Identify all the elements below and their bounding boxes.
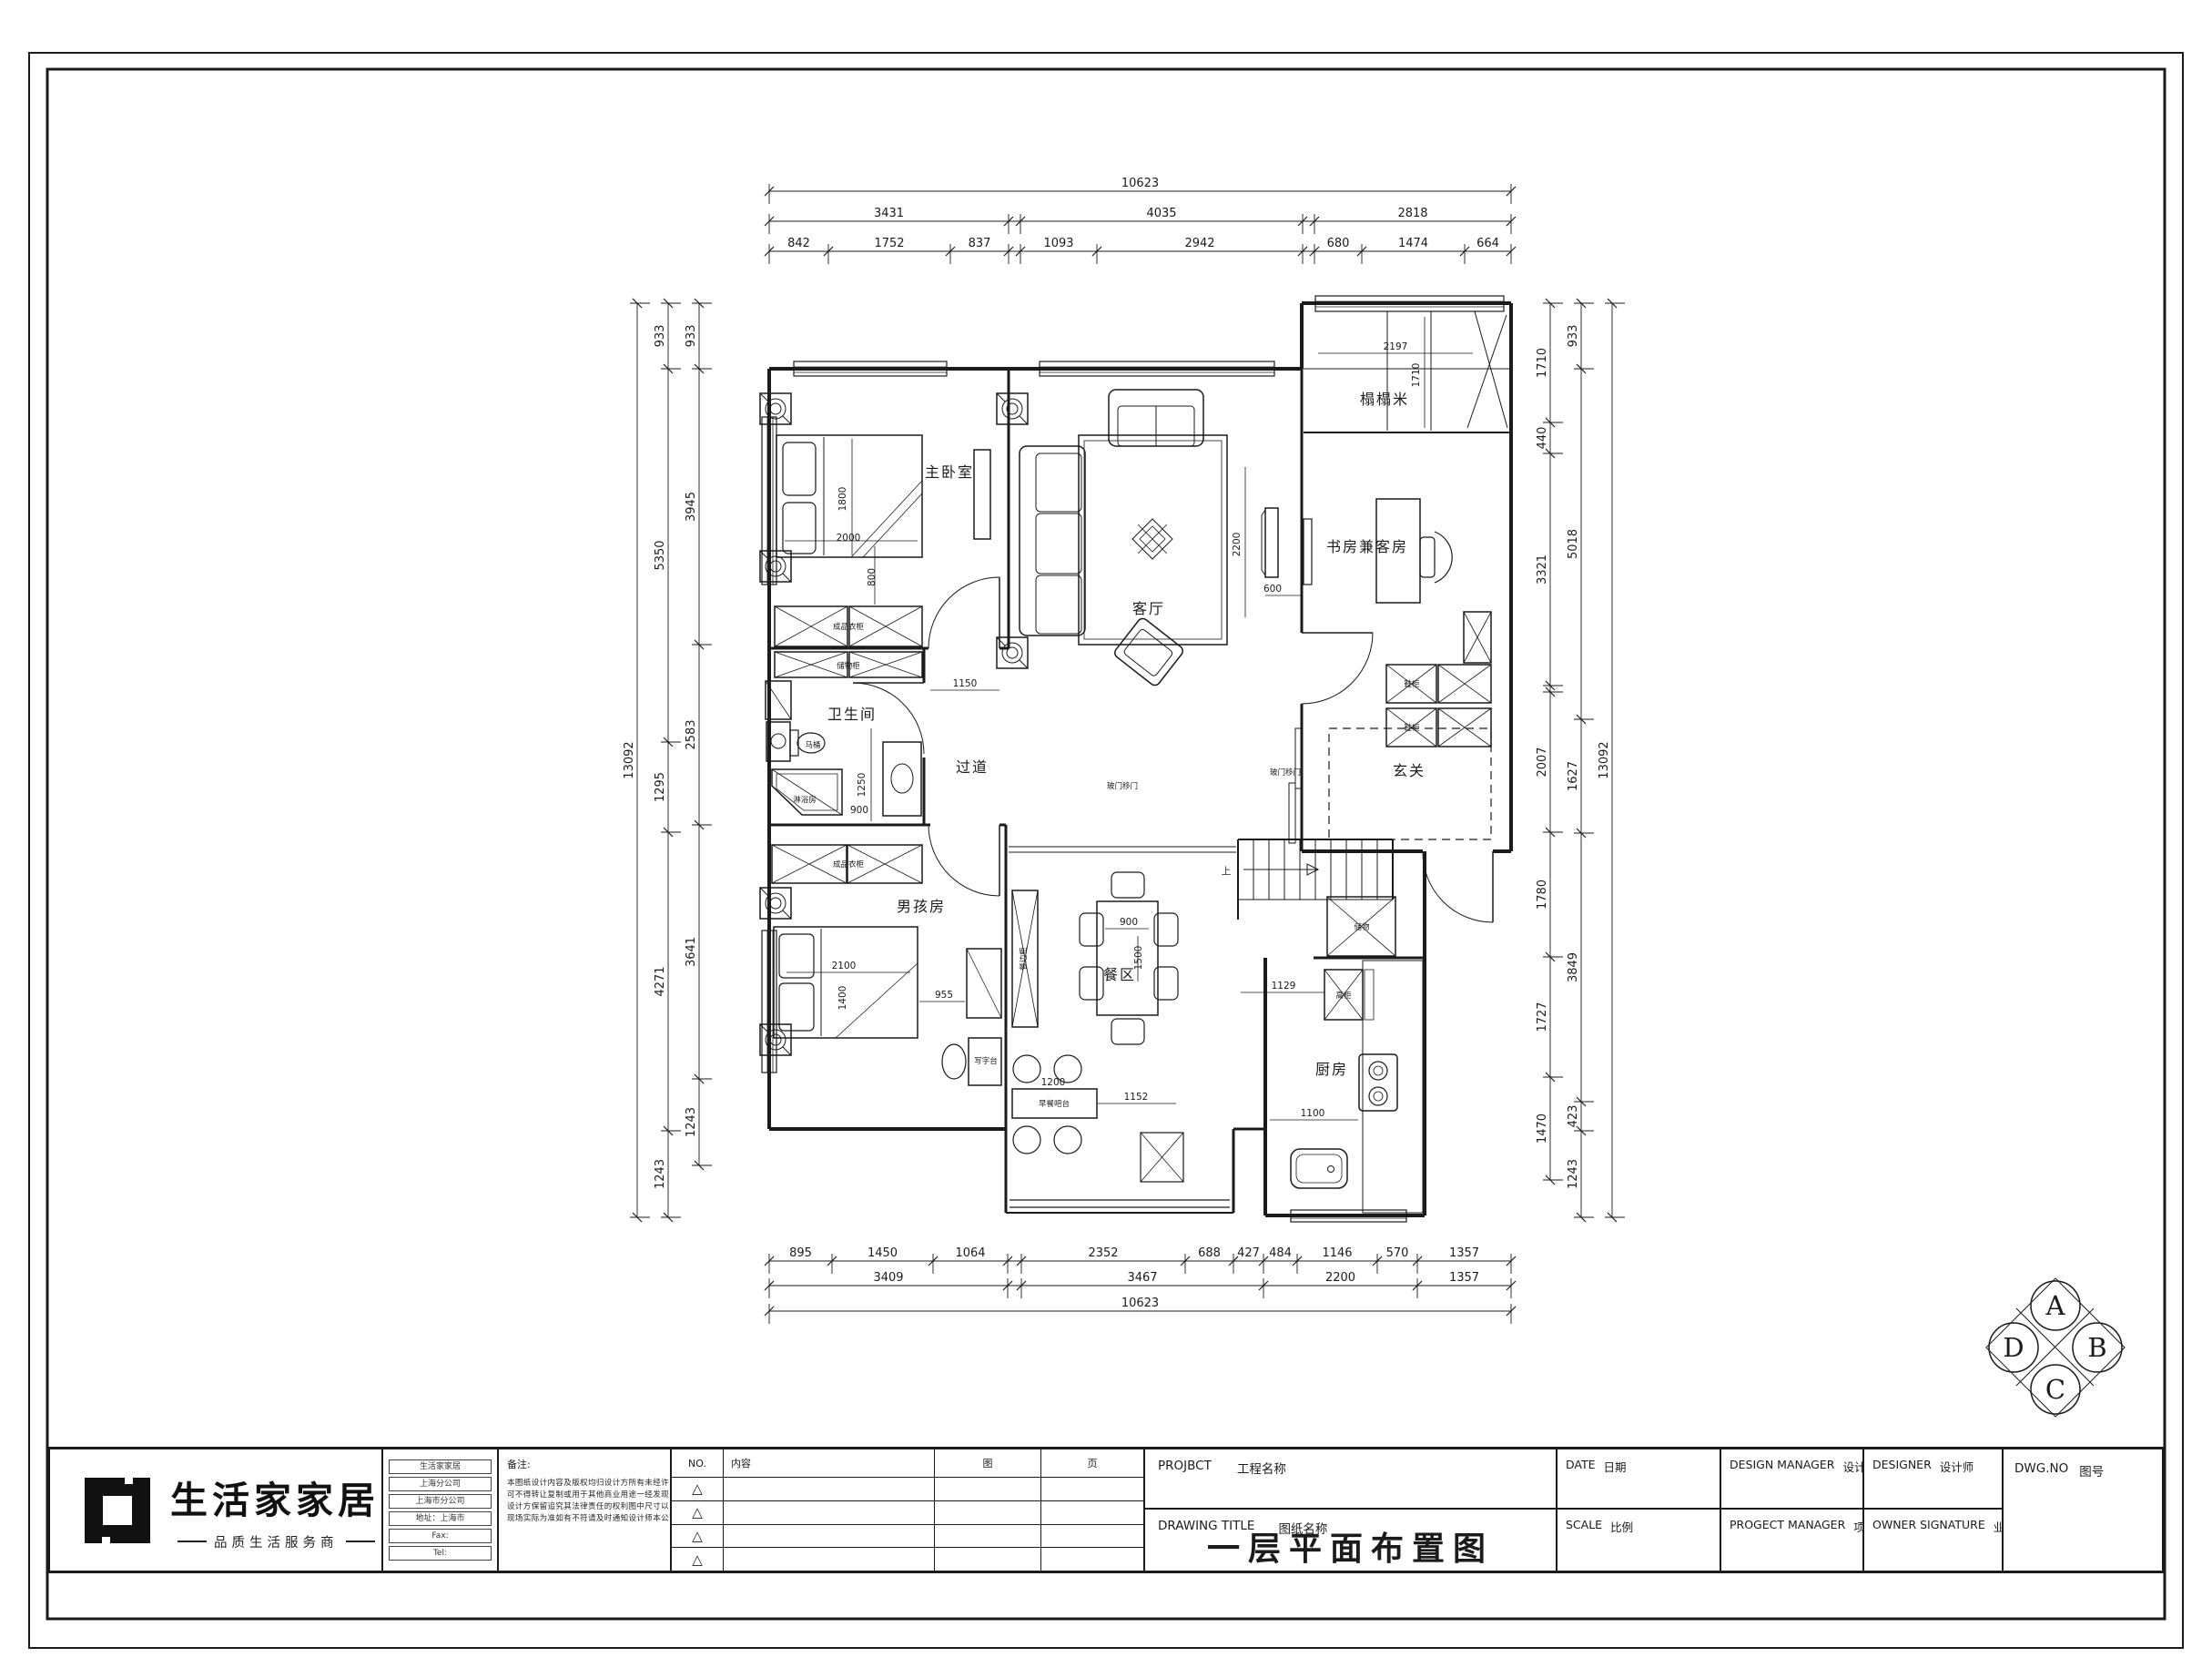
project-section: PROJBCT 工程名称 DRAWING TITLE 图纸名称 一层平面布置图 (1145, 1449, 1558, 1571)
dim-text: 1710 (1536, 348, 1549, 378)
dim-text: 1064 (955, 1246, 985, 1260)
dim-chain-top-mid: 343140352818 (765, 207, 1516, 234)
bookshelf (1304, 519, 1312, 585)
column-symbol (760, 393, 791, 424)
idim-label: 上 (1222, 866, 1232, 877)
pillow (779, 934, 814, 978)
idim-label: 900 (850, 805, 868, 816)
dim-text: 1146 (1322, 1246, 1352, 1260)
company-info-box: 生活家家居 (389, 1459, 492, 1474)
column-symbol (997, 393, 1028, 424)
accent-chair (1112, 616, 1184, 687)
furn-label: 成品衣柜 (833, 859, 865, 870)
dim-text: 1727 (1536, 1002, 1549, 1032)
logo-section: 生活家家居 品质生活服务商 (50, 1449, 383, 1571)
stool (1013, 1126, 1040, 1154)
design-manager-label-cn: 设计经理 (1842, 1458, 1864, 1500)
furn-label: 储物 (1354, 922, 1370, 932)
chair (1111, 1019, 1144, 1044)
dim-text: 933 (1567, 325, 1580, 348)
designer-section: DESIGNER 设计师 OWNER SIGNATURE 业主签字 (1864, 1449, 2004, 1571)
rev-header-desc: 内容 (724, 1449, 935, 1477)
project-label-en: PROJBCT (1158, 1459, 1212, 1499)
notes-title: 备注: (507, 1457, 662, 1471)
columns (760, 393, 1028, 1055)
dim-text: 2200 (1325, 1271, 1355, 1285)
stove (1359, 1054, 1397, 1111)
walls (769, 303, 1511, 1215)
notes-section: 备注: 本图纸设计内容及版权均归设计方所有未经许 可不得转让复制或用于其他商业用… (499, 1449, 672, 1571)
revision-triangle: △ (672, 1525, 724, 1548)
column-symbol (997, 637, 1028, 668)
dim-text: 10623 (1121, 1297, 1159, 1310)
idim-label: 1800 (837, 487, 848, 512)
room-label: 客厅 (1132, 600, 1165, 617)
dim-text: 895 (789, 1246, 812, 1260)
chair (1111, 872, 1144, 898)
chair (1080, 913, 1103, 946)
designer-label-cn: 设计师 (1940, 1458, 1974, 1500)
company-logo-icon (85, 1478, 150, 1543)
idim-label: 1129 (1272, 981, 1296, 992)
date-scale-section: DATE 日期 SCALE 比例 (1558, 1449, 1721, 1571)
date-label-cn: 日期 (1604, 1458, 1627, 1500)
company-info-box: Tel: (389, 1546, 492, 1561)
dim-text: 1627 (1567, 761, 1580, 791)
dim-text: 837 (969, 237, 991, 250)
furn-label: 鞋柜 (1404, 679, 1420, 689)
stool (1054, 1126, 1081, 1154)
column-symbol (760, 1024, 791, 1055)
idim-label: 1100 (1301, 1108, 1325, 1119)
compass-letter-d: D (2003, 1332, 2024, 1363)
project-manager-label-en: PROGECT MANAGER (1730, 1518, 1845, 1562)
doors (853, 577, 1493, 922)
idim-label: 900 (1120, 917, 1138, 928)
idim-label: 1710 (1411, 363, 1422, 388)
design-manager-label-en: DESIGN MANAGER (1730, 1458, 1834, 1500)
project-label-cn: 工程名称 (1237, 1459, 1286, 1499)
dim-text: 4035 (1146, 207, 1176, 220)
company-tagline-text: 品质生活服务商 (214, 1532, 339, 1551)
idim-label: 2000 (837, 533, 861, 544)
dim-text: 1752 (874, 237, 904, 250)
plan-labels: 主卧室客厅书房兼客房卫生间过道玄关男孩房餐区厨房榻榻米成品衣柜储物柜成品衣柜餐边… (793, 341, 1426, 1119)
foyer-mat (1329, 728, 1491, 839)
room-label: 卫生间 (827, 706, 877, 723)
border-frame (29, 53, 2183, 1648)
revision-table: NO. 内容 图 页 △ △ △ △ (672, 1449, 1145, 1571)
rev-header-fig: 图 (935, 1449, 1041, 1477)
compass-letter-c: C (2045, 1374, 2065, 1405)
dim-text: 13092 (623, 741, 636, 778)
idim-label: 2197 (1384, 341, 1408, 352)
dim-text: 2583 (685, 719, 698, 749)
idim-label: 1400 (837, 986, 848, 1011)
room-label: 书房兼客房 (1326, 538, 1408, 555)
furn-label: 马桶 (805, 740, 820, 750)
project-manager-label-cn: 项目经理 (1853, 1518, 1864, 1562)
room-label: 主卧室 (925, 463, 974, 481)
title-block: 生活家家居 品质生活服务商 生活家家居 上海分公司 上海市分公司 地址：上海市 … (47, 1447, 2165, 1573)
notes-line: 设计方保留追究其法律责任的权利图中尺寸以 (507, 1501, 662, 1513)
dim-text: 1474 (1398, 237, 1428, 250)
dim-chain-left-mid: 9335350129542711243 (654, 299, 681, 1222)
furn-label: 玻门移门 (1270, 768, 1301, 778)
dim-text: 2818 (1397, 207, 1427, 220)
dwg-no-label-en: DWG.NO (2014, 1461, 2068, 1476)
manager-section: DESIGN MANAGER 设计经理 PROGECT MANAGER 项目经理 (1721, 1449, 1864, 1571)
drawing-title: 一层平面布置图 (1145, 1522, 1556, 1570)
dim-text: 1780 (1536, 880, 1549, 910)
dim-text: 3945 (685, 492, 698, 522)
dim-chain-top-total: 10623 (765, 177, 1516, 204)
furn-label: 储物柜 (837, 661, 860, 671)
dim-text: 5018 (1567, 529, 1580, 559)
sofa (1020, 446, 1085, 636)
column-symbol (760, 888, 791, 919)
furn-label: 鞋柜 (1404, 723, 1420, 733)
cabinet-xbox (1438, 708, 1491, 747)
dim-text: 3321 (1536, 554, 1549, 585)
dim-text: 1357 (1449, 1271, 1479, 1285)
dim-chain-right-detail: 171044033212007178017271470 (1536, 299, 1563, 1185)
dim-chain-right-total: 13092 (1598, 299, 1625, 1222)
company-info-section: 生活家家居 上海分公司 上海市分公司 地址：上海市 Fax: Tel: (383, 1449, 499, 1571)
dim-text: 1450 (868, 1246, 898, 1260)
idim-label: 600 (1263, 584, 1282, 595)
company-tagline: 品质生活服务商 (170, 1532, 382, 1551)
desk-chair (1420, 537, 1435, 577)
dim-text: 680 (1327, 237, 1350, 250)
dim-text: 2352 (1088, 1246, 1118, 1260)
dim-chain-left-total: 13092 (623, 299, 650, 1222)
dim-text: 1357 (1449, 1246, 1479, 1260)
notes-line: 现场实际为准如有不符请及时通知设计师本公司 (507, 1513, 662, 1525)
compass-letter-b: B (2087, 1332, 2106, 1363)
dim-text: 933 (685, 325, 698, 348)
date-label-en: DATE (1566, 1458, 1596, 1500)
dim-chain-left-detail: 9333945258336411243 (685, 299, 712, 1170)
idim-label: 1250 (857, 773, 868, 798)
dim-text: 2942 (1184, 237, 1214, 250)
dim-text: 423 (1567, 1105, 1580, 1128)
idim-label: 1500 (1133, 946, 1144, 971)
company-info-box: 上海分公司 (389, 1477, 492, 1491)
revision-triangle: △ (672, 1478, 724, 1500)
room-label: 玄关 (1393, 762, 1426, 779)
dim-text: 1093 (1043, 237, 1073, 250)
revision-triangle: △ (672, 1548, 724, 1571)
floor-plan-drawing: 1062334314035281884217528371093294268014… (0, 0, 2212, 1678)
dwg-no-section: DWG.NO 图号 (2004, 1449, 2162, 1571)
dim-text: 842 (787, 237, 810, 250)
dim-text: 2007 (1536, 747, 1549, 777)
tv-cabinet (1265, 508, 1278, 577)
idim-label: 1200 (1041, 1077, 1066, 1088)
idim-label: 2100 (832, 961, 857, 971)
dim-text: 1243 (685, 1107, 698, 1137)
kitchen-counter (1363, 961, 1423, 1213)
notes-line: 可不得转让复制或用于其他商业用途一经发现 (507, 1490, 662, 1501)
dim-text: 440 (1536, 427, 1549, 450)
compass-symbol: A B C D (1986, 1278, 2125, 1417)
scale-label-en: SCALE (1566, 1518, 1602, 1562)
furn-label: 早餐吧台 (1039, 1099, 1070, 1109)
sink (1291, 1149, 1347, 1188)
chair (1080, 967, 1103, 1000)
pillow (783, 503, 816, 554)
furn-label: 写字台 (974, 1056, 998, 1066)
room-label: 厨房 (1315, 1061, 1348, 1078)
dim-text: 10623 (1121, 177, 1159, 190)
dim-chain-bottom-mid: 3409346722001357 (765, 1271, 1516, 1298)
idim-label: 1152 (1124, 1092, 1149, 1103)
dim-text: 3409 (873, 1271, 903, 1285)
dim-text: 13092 (1598, 741, 1611, 778)
dim-text: 484 (1269, 1246, 1292, 1260)
cabinet-xbox (1438, 665, 1491, 703)
compass-letter-a: A (2045, 1290, 2066, 1321)
company-name: 生活家家居 (170, 1470, 382, 1524)
furn-label: 高柜 (1335, 991, 1352, 1001)
boys-bed (774, 927, 918, 1038)
cabinet-xbox (1464, 612, 1491, 663)
chair (942, 1044, 966, 1079)
company-info-box: 地址：上海市 (389, 1511, 492, 1526)
cad-sheet: { "logo": {"name": "生活家家居", "tagline": "… (0, 0, 2212, 1678)
dim-chain-top-detail: 8421752837109329426801474664 (765, 237, 1516, 264)
idim-label: 955 (935, 990, 953, 1001)
furn-label: 餐边柜 (1019, 947, 1029, 971)
stool (1013, 1055, 1040, 1083)
designer-label-en: DESIGNER (1872, 1458, 1932, 1500)
dim-text: 3849 (1567, 952, 1580, 982)
idim-label: 800 (867, 568, 878, 586)
dim-chain-bottom-detail: 89514501064235268842748411465701357 (765, 1246, 1516, 1274)
owner-signature-label-en: OWNER SIGNATURE (1872, 1518, 1985, 1562)
furn-label: 淋浴房 (793, 795, 817, 805)
dim-text: 688 (1198, 1246, 1221, 1260)
company-info-box: Fax: (389, 1529, 492, 1543)
dim-text: 4271 (654, 966, 667, 996)
dim-text: 933 (654, 325, 667, 348)
dim-chain-right-mid: 9335018162738494231243 (1567, 299, 1594, 1222)
dim-text: 3467 (1127, 1271, 1157, 1285)
room-label: 榻榻米 (1360, 391, 1409, 408)
cabinet-xbox (849, 652, 922, 677)
furn-label: 成品衣柜 (833, 622, 865, 632)
dim-text: 1295 (654, 772, 667, 802)
dim-text: 1243 (654, 1159, 667, 1189)
dwg-no-label-cn: 图号 (2079, 1461, 2104, 1480)
room-label: 过道 (956, 758, 989, 776)
pillow (779, 983, 814, 1031)
room-label: 男孩房 (897, 898, 946, 915)
dresser (974, 450, 990, 539)
dim-chain-bottom-total: 10623 (765, 1297, 1516, 1324)
notes-line: 本图纸设计内容及版权均归设计方所有未经许 (507, 1478, 662, 1490)
dim-text: 1470 (1536, 1114, 1549, 1144)
revision-triangle: △ (672, 1501, 724, 1524)
dim-text: 1243 (1567, 1159, 1580, 1189)
dim-text: 3431 (874, 207, 904, 220)
dim-text: 3641 (685, 937, 698, 967)
rev-header-page: 页 (1041, 1449, 1143, 1477)
dim-text: 427 (1237, 1246, 1260, 1260)
owner-signature-label-cn: 业主签字 (1994, 1518, 2004, 1562)
dimension-chains: 1062334314035281884217528371093294268014… (623, 177, 1625, 1324)
dim-text: 5350 (654, 540, 667, 570)
rev-header-no: NO. (672, 1449, 724, 1477)
idim-label: 2200 (1232, 533, 1243, 557)
vanity (883, 742, 921, 816)
idim-label: 1150 (953, 678, 978, 689)
scale-label-cn: 比例 (1610, 1518, 1633, 1562)
column-symbol (760, 551, 791, 582)
dim-text: 664 (1476, 237, 1499, 250)
room-label: 餐区 (1103, 966, 1136, 983)
dim-text: 570 (1386, 1246, 1409, 1260)
furn-label: 玻门移门 (1107, 781, 1138, 791)
company-info-box: 上海市分公司 (389, 1494, 492, 1509)
pillow (783, 442, 816, 495)
